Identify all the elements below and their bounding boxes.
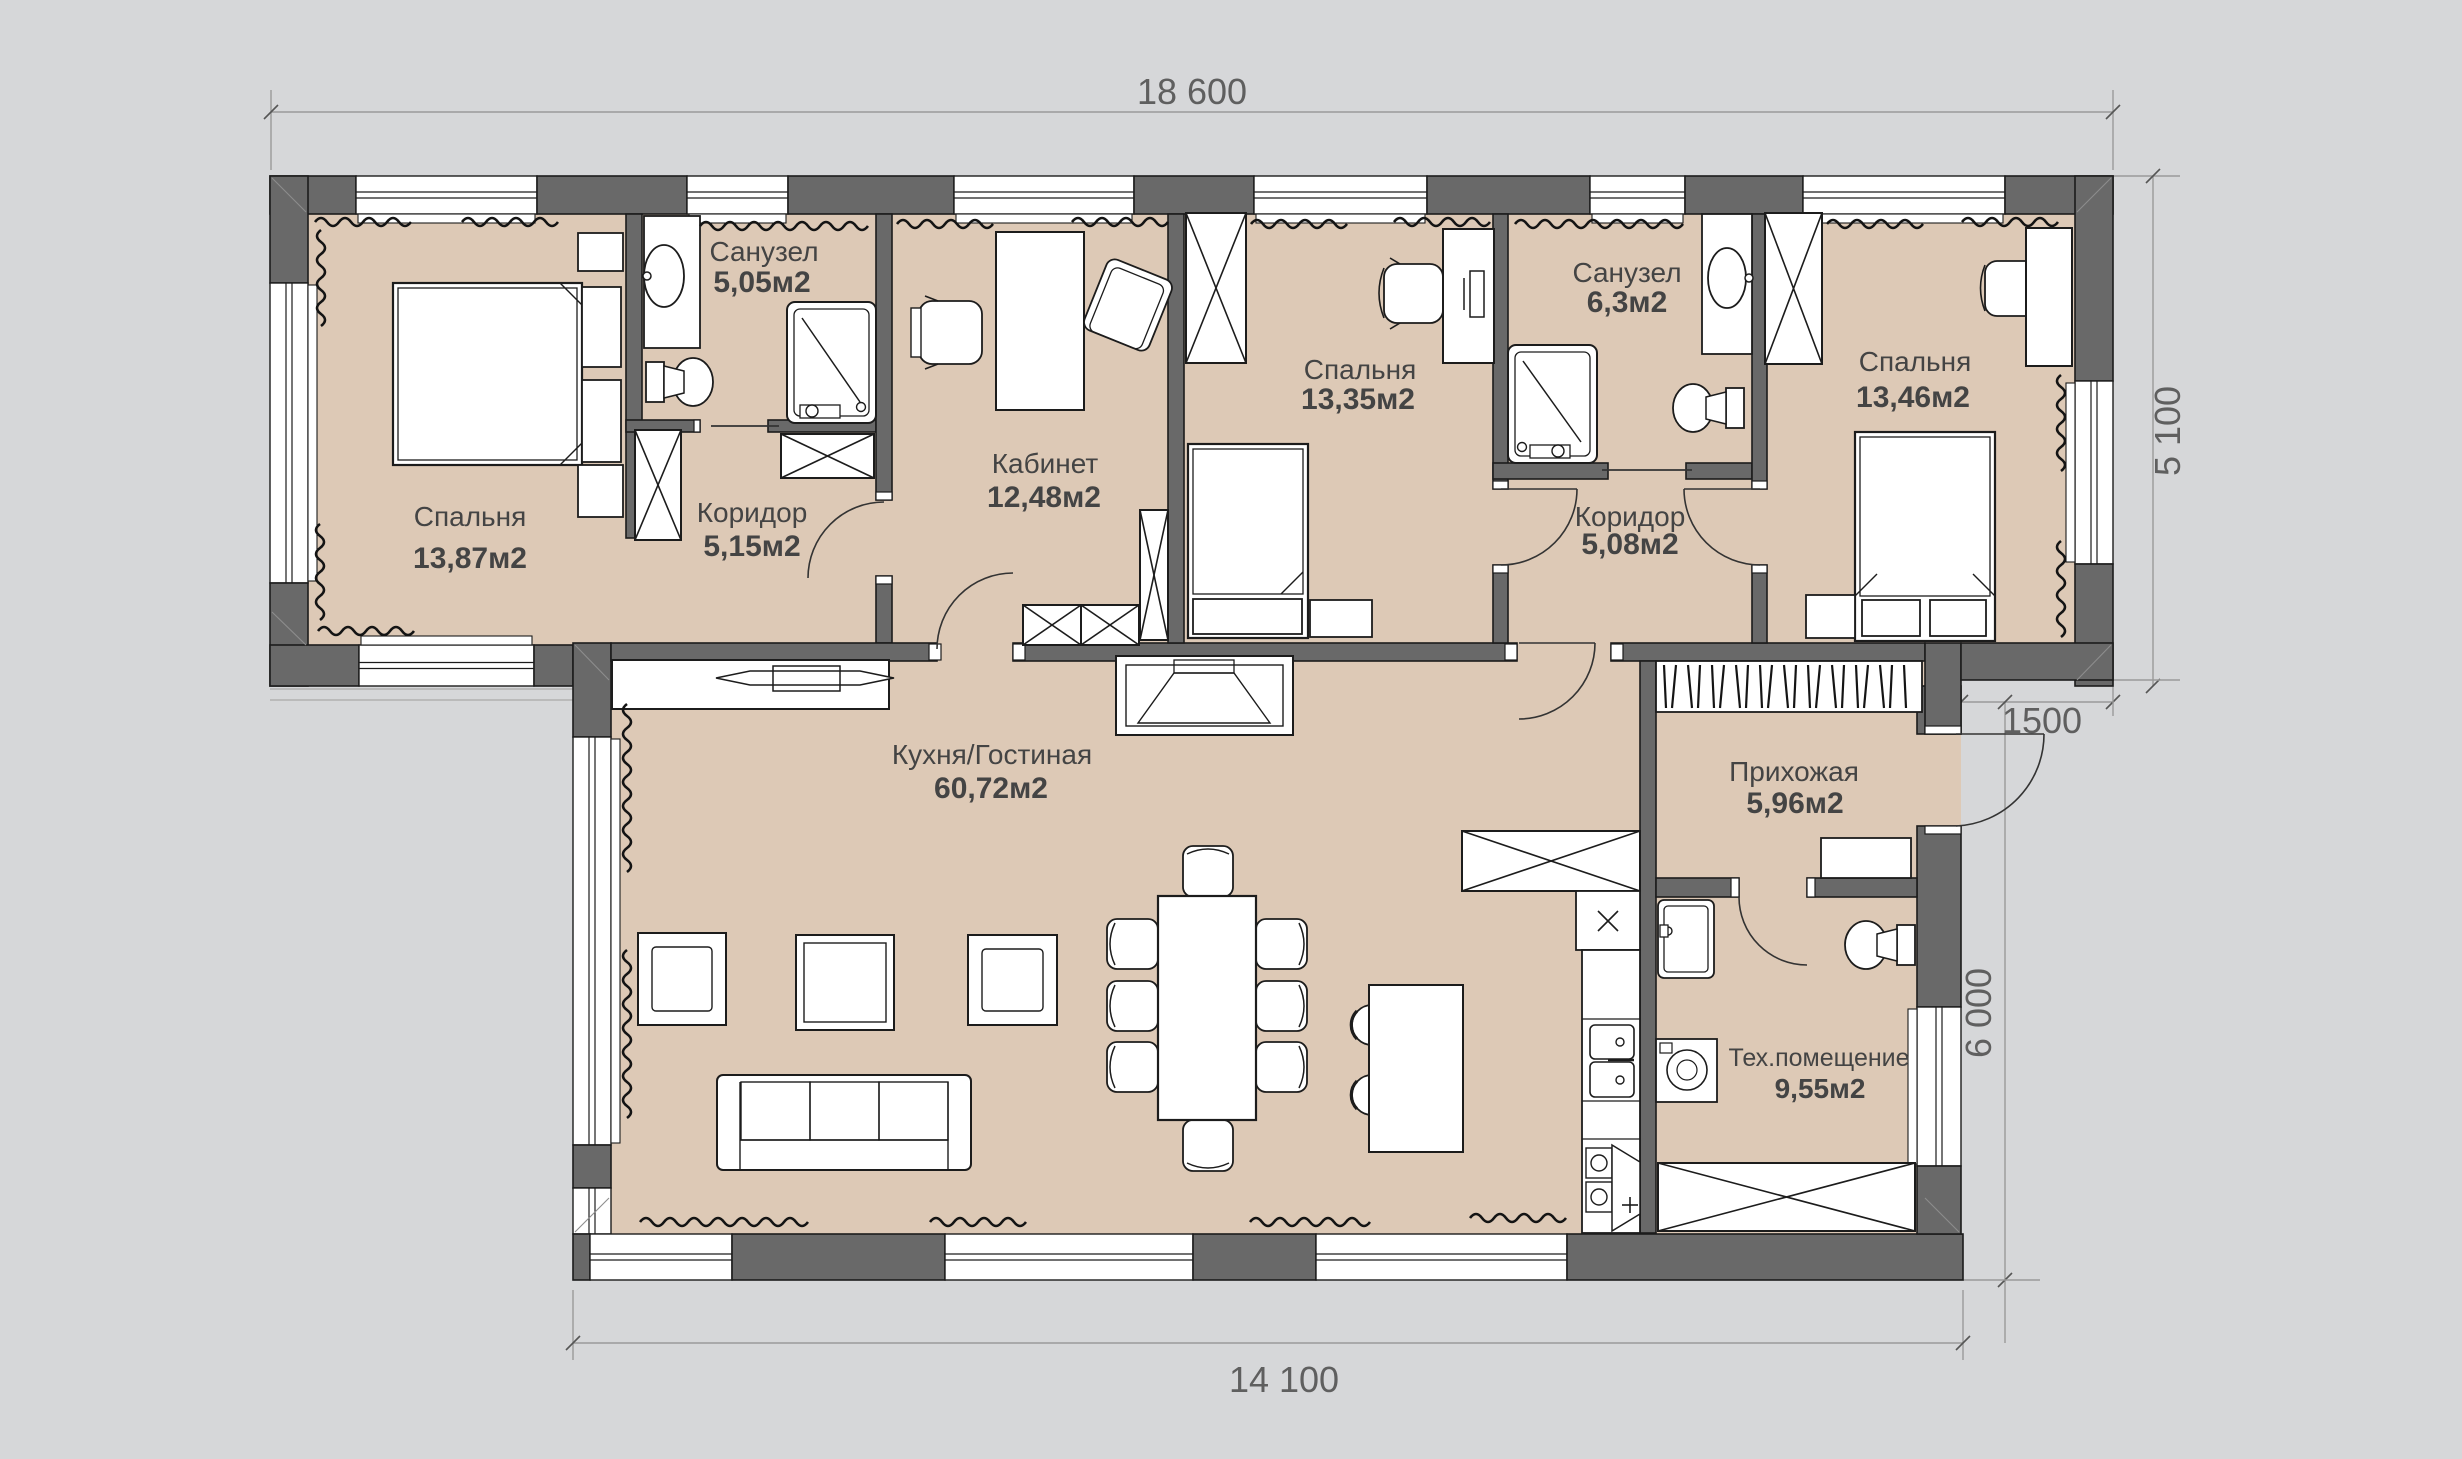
svg-text:Спальня: Спальня bbox=[414, 501, 527, 532]
svg-text:Прихожая: Прихожая bbox=[1729, 756, 1859, 787]
svg-text:Тех.помещение: Тех.помещение bbox=[1728, 1044, 1909, 1072]
svg-text:Спальня: Спальня bbox=[1859, 346, 1972, 377]
svg-text:14 100: 14 100 bbox=[1229, 1359, 1339, 1400]
svg-text:12,48м2: 12,48м2 bbox=[987, 481, 1101, 514]
svg-text:5,05м2: 5,05м2 bbox=[713, 266, 810, 299]
svg-text:Санузел: Санузел bbox=[709, 236, 818, 267]
svg-text:1500: 1500 bbox=[2002, 700, 2082, 741]
svg-text:Кабинет: Кабинет bbox=[992, 448, 1099, 479]
svg-text:5,08м2: 5,08м2 bbox=[1581, 528, 1678, 561]
svg-text:13,35м2: 13,35м2 bbox=[1301, 383, 1415, 416]
svg-text:6 000: 6 000 bbox=[1958, 968, 1999, 1058]
svg-text:18 600: 18 600 bbox=[1137, 71, 1247, 112]
svg-text:5,96м2: 5,96м2 bbox=[1746, 787, 1843, 820]
svg-text:5 100: 5 100 bbox=[2147, 386, 2188, 476]
svg-text:Кухня/Гостиная: Кухня/Гостиная bbox=[892, 739, 1092, 770]
svg-text:13,87м2: 13,87м2 bbox=[413, 542, 527, 575]
svg-text:6,3м2: 6,3м2 bbox=[1587, 286, 1668, 319]
svg-text:9,55м2: 9,55м2 bbox=[1775, 1073, 1866, 1104]
svg-text:Спальня: Спальня bbox=[1304, 354, 1417, 385]
svg-text:5,15м2: 5,15м2 bbox=[703, 530, 800, 563]
svg-text:Санузел: Санузел bbox=[1572, 257, 1681, 288]
svg-text:13,46м2: 13,46м2 bbox=[1856, 381, 1970, 414]
svg-text:60,72м2: 60,72м2 bbox=[934, 772, 1048, 805]
svg-text:Коридор: Коридор bbox=[697, 497, 808, 528]
